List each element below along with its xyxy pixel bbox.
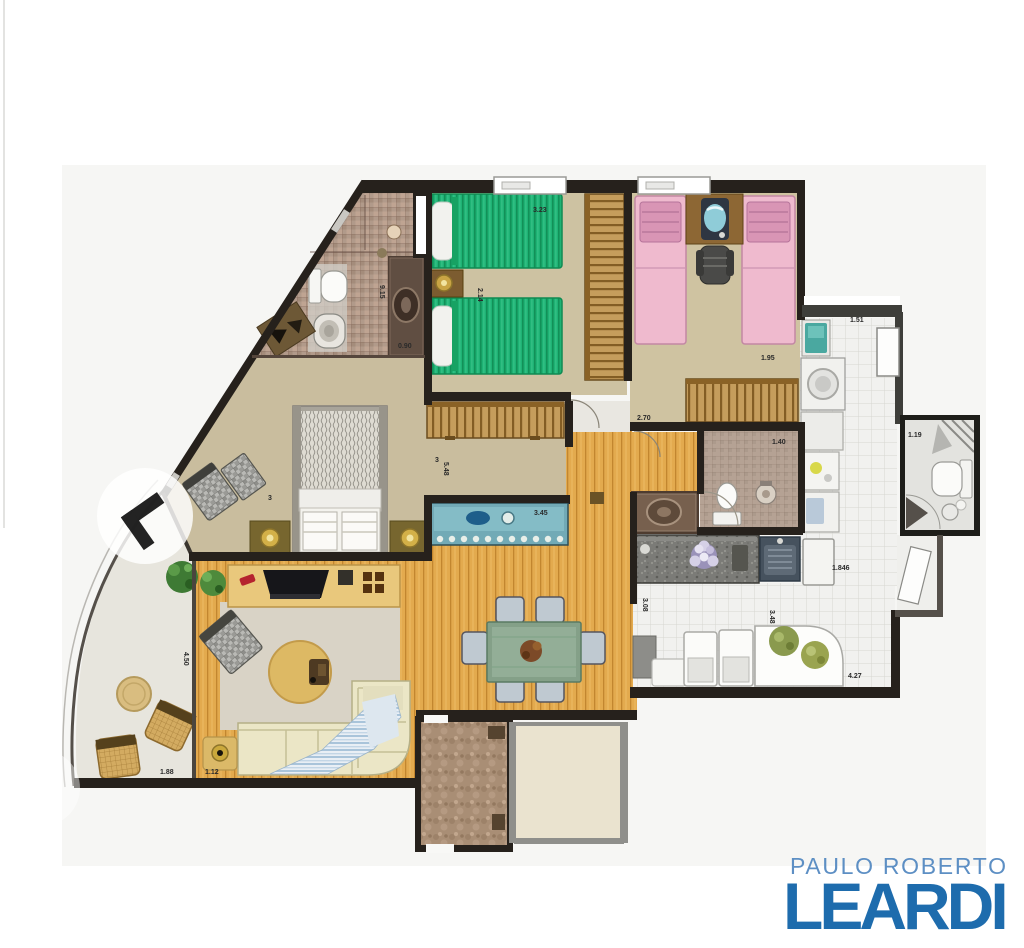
svg-text:0.90: 0.90 [398,343,412,350]
svg-text:1.51: 1.51 [850,317,864,324]
svg-text:4.50: 4.50 [182,652,189,666]
svg-text:2.14: 2.14 [476,288,483,302]
svg-text:3.48: 3.48 [768,610,775,624]
svg-text:9.15: 9.15 [378,285,385,299]
svg-text:3: 3 [435,457,439,464]
svg-text:LEARDI: LEARDI [783,869,1005,943]
svg-text:1.846: 1.846 [832,565,850,572]
svg-text:1.40: 1.40 [772,439,786,446]
svg-text:1.12: 1.12 [205,769,219,776]
svg-text:3: 3 [268,495,272,502]
svg-text:3.45: 3.45 [534,510,548,517]
svg-text:2.70: 2.70 [637,415,651,422]
svg-text:5.48: 5.48 [442,462,449,476]
svg-text:4.27: 4.27 [848,673,862,680]
svg-text:3.08: 3.08 [641,598,648,612]
svg-text:1.95: 1.95 [761,355,775,362]
svg-text:3.23: 3.23 [533,207,547,214]
svg-text:1.88: 1.88 [160,769,174,776]
svg-text:1.19: 1.19 [908,432,922,439]
